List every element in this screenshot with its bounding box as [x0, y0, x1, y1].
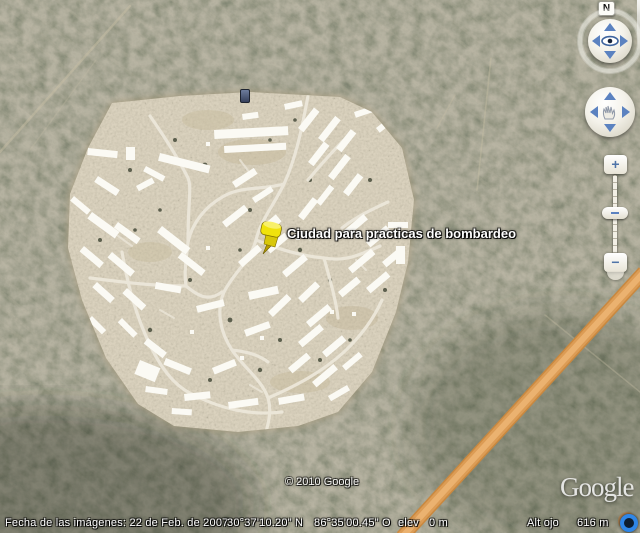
placemark-pin-icon[interactable]	[250, 216, 290, 258]
hand-icon	[601, 103, 619, 121]
look-joystick[interactable]	[588, 19, 632, 63]
elevation-label: elev	[398, 517, 419, 529]
look-left-arrow-icon[interactable]	[592, 35, 600, 47]
zoom-out-button[interactable]: −	[604, 253, 627, 272]
eye-icon	[600, 35, 620, 47]
streaming-progress-icon	[620, 514, 638, 532]
zoom-slider-handle[interactable]	[602, 207, 628, 219]
look-up-arrow-icon[interactable]	[604, 23, 616, 31]
move-up-arrow-icon[interactable]	[604, 92, 616, 100]
look-right-arrow-icon[interactable]	[620, 35, 628, 47]
poi-icon[interactable]	[240, 89, 250, 103]
eye-altitude-value: 616 m	[577, 517, 609, 529]
latitude-text: 30°37'10.20" N	[227, 517, 303, 529]
map-copyright: © 2010 Google	[285, 476, 359, 488]
look-down-arrow-icon[interactable]	[604, 51, 616, 59]
google-earth-viewport[interactable]: Ciudad para practicas de bombardeo © 201…	[0, 0, 640, 533]
move-down-arrow-icon[interactable]	[604, 124, 616, 132]
move-left-arrow-icon[interactable]	[590, 106, 598, 118]
elevation-value: 0 m	[429, 517, 448, 529]
zoom-in-button[interactable]: +	[604, 155, 627, 174]
imagery-date-text: Fecha de las imágenes: 22 de Feb. de 200…	[5, 517, 228, 529]
satellite-imagery[interactable]	[0, 0, 640, 533]
google-logo: Google	[560, 472, 633, 503]
longitude-text: 86°35'00.45" O	[314, 517, 391, 529]
eye-altitude-label: Alt ojo	[527, 517, 559, 529]
move-joystick[interactable]	[585, 87, 635, 137]
placemark-label[interactable]: Ciudad para practicas de bombardeo	[287, 226, 516, 241]
move-right-arrow-icon[interactable]	[622, 106, 630, 118]
